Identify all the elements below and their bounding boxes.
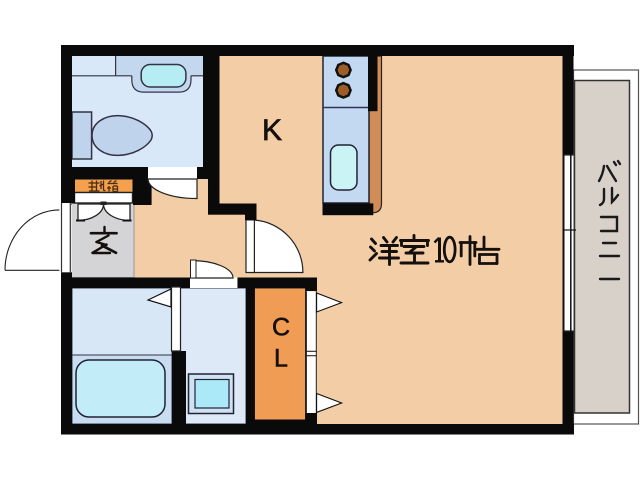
svg-text:C: C: [272, 314, 290, 342]
svg-text:L: L: [274, 345, 288, 373]
svg-text:K: K: [262, 114, 282, 147]
